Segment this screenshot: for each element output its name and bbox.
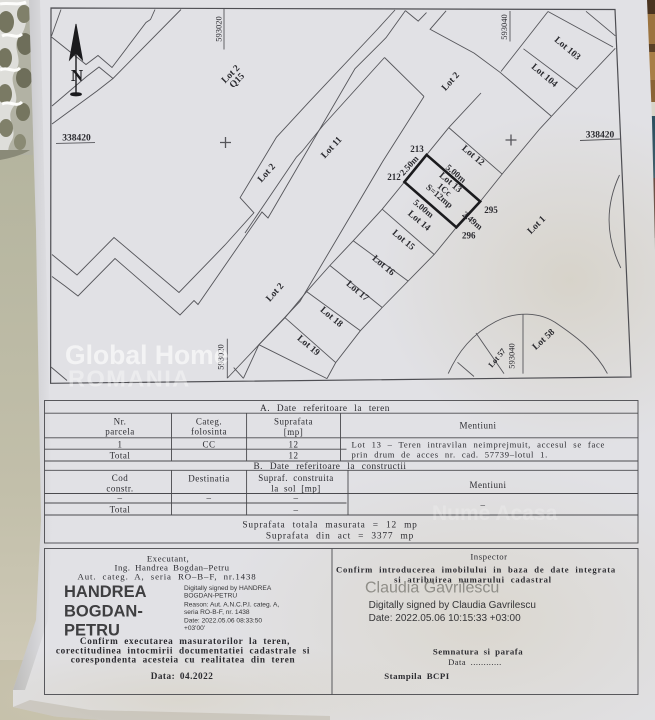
svg-text:ROMANIA: ROMANIA	[68, 366, 191, 392]
svg-text:folosinta: folosinta	[191, 427, 227, 437]
svg-text:Destinatia: Destinatia	[188, 474, 230, 484]
svg-text:BOGDAN-PETRU: BOGDAN-PETRU	[184, 592, 237, 599]
svg-text:B. Date referitoare la constru: B. Date referitoare la constructii	[253, 461, 406, 472]
svg-text:BOGDAN-: BOGDAN-	[64, 603, 143, 621]
svg-text:Confirm introducerea imobilulu: Confirm introducerea imobilului in baza …	[336, 565, 616, 575]
svg-text:Nr.: Nr.	[114, 417, 127, 427]
svg-text:Reason: Aut. A.N.C.P.I. categ.: Reason: Aut. A.N.C.P.I. categ. A,	[184, 601, 279, 608]
svg-text:12: 12	[289, 440, 299, 450]
svg-text:[mp]: [mp]	[284, 427, 304, 437]
svg-text:A. Date referitoare la teren: A. Date referitoare la teren	[260, 403, 390, 414]
svg-text:593020: 593020	[214, 16, 224, 42]
svg-text:–: –	[293, 493, 299, 503]
svg-text:constr.: constr.	[106, 484, 133, 494]
svg-text:Cod: Cod	[112, 473, 129, 483]
svg-text:Data: 04.2022: Data: 04.2022	[151, 671, 214, 681]
svg-text:Claudia Gavrilescu: Claudia Gavrilescu	[365, 580, 499, 597]
svg-text:corespondenta acesteia cu real: corespondenta acesteia cu realitatea din…	[71, 655, 296, 665]
svg-text:295: 295	[484, 205, 498, 215]
svg-text:N: N	[71, 66, 84, 85]
svg-text:Categ.: Categ.	[196, 417, 222, 427]
svg-text:593040: 593040	[507, 343, 517, 369]
svg-text:HANDREA: HANDREA	[64, 583, 147, 601]
svg-text:Data ............: Data ............	[448, 658, 502, 667]
svg-text:Total: Total	[110, 451, 131, 461]
svg-text:Lot 13 – Teren intravilan neim: Lot 13 – Teren intravilan neimprejmuit, …	[352, 440, 606, 450]
svg-text:593040: 593040	[499, 14, 509, 40]
svg-text:prin drum de acces nr. cad. 57: prin drum de acces nr. cad. 57739–lotul …	[352, 449, 548, 459]
svg-text:+03'00': +03'00'	[184, 625, 205, 632]
svg-text:Digitally signed by Claudia Ga: Digitally signed by Claudia Gavrilescu	[369, 600, 536, 611]
svg-text:Semnatura si parafa: Semnatura si parafa	[433, 647, 523, 657]
svg-text:parcela: parcela	[105, 427, 134, 437]
svg-text:Digitally signed by HANDREA: Digitally signed by HANDREA	[184, 585, 272, 592]
svg-text:296: 296	[462, 231, 476, 241]
svg-text:338420: 338420	[62, 134, 91, 144]
svg-text:Date: 2022.05.06 08:33:50: Date: 2022.05.06 08:33:50	[184, 617, 262, 624]
svg-text:Suprafata din act = 3377 mp: Suprafata din act = 3377 mp	[266, 530, 414, 541]
svg-text:212: 212	[387, 172, 401, 182]
svg-text:1: 1	[118, 440, 123, 450]
svg-text:Mentiuni: Mentiuni	[460, 421, 497, 431]
svg-text:Date: 2022.05.06 10:15:33 +03:: Date: 2022.05.06 10:15:33 +03:00	[369, 613, 522, 624]
svg-text:seria RO-B-F, nr. 1438: seria RO-B-F, nr. 1438	[184, 609, 250, 616]
svg-text:Inspector: Inspector	[470, 552, 507, 562]
svg-text:Mentiuni: Mentiuni	[470, 480, 507, 490]
svg-text:12: 12	[289, 451, 299, 461]
svg-text:Total: Total	[110, 505, 131, 515]
svg-text:Suprafata: Suprafata	[274, 417, 313, 427]
svg-text:Stampila BCPI: Stampila BCPI	[384, 671, 450, 681]
svg-text:Supraf. construita: Supraf. construita	[258, 473, 333, 483]
svg-text:Nume Acasa: Nume Acasa	[432, 502, 558, 525]
svg-text:CC: CC	[202, 440, 215, 450]
svg-text:213: 213	[410, 144, 424, 154]
svg-text:Suprafata totala masurata = 12: Suprafata totala masurata = 12 mp	[242, 520, 417, 531]
svg-text:–: –	[117, 493, 123, 503]
svg-text:–: –	[206, 493, 212, 503]
svg-text:la sol [mp]: la sol [mp]	[271, 484, 321, 494]
svg-text:–: –	[293, 505, 299, 515]
svg-text:Aut. categ. A, seria RO–B–F, n: Aut. categ. A, seria RO–B–F, nr.1438	[77, 572, 256, 582]
svg-text:338420: 338420	[586, 131, 615, 141]
